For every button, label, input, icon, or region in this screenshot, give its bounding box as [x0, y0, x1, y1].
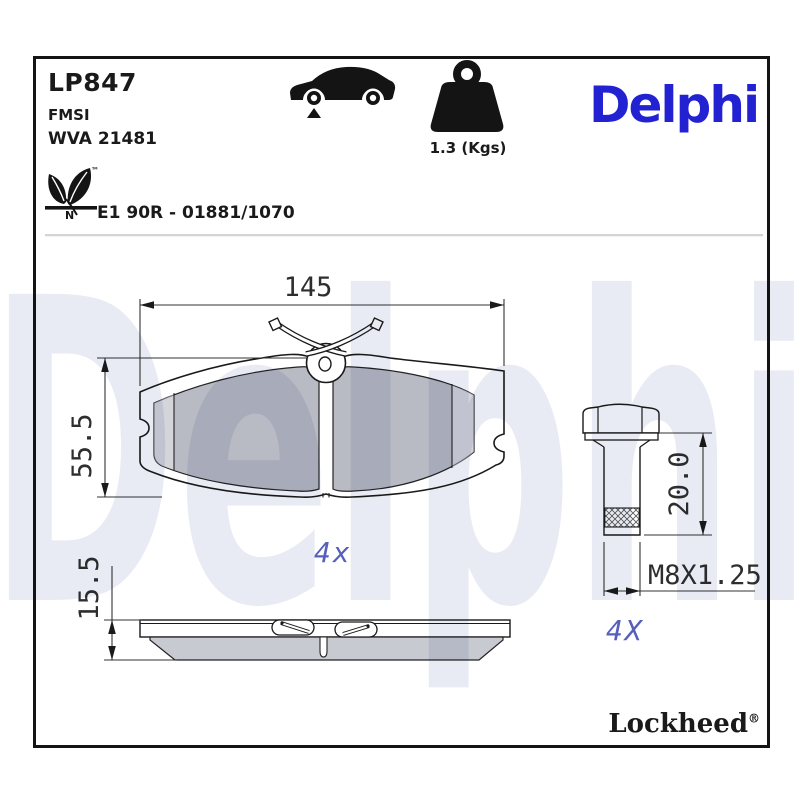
header-divider — [45, 234, 763, 237]
guide-bolt-view — [583, 404, 659, 535]
lockheed-wordmark: Lockheed — [608, 709, 748, 739]
lockheed-logo: Lockheed® — [608, 709, 760, 739]
dim-width-value: 145 — [284, 272, 333, 303]
bolt-neck — [593, 440, 650, 447]
boss-hole — [319, 357, 331, 371]
dim-height-value: 55.5 — [67, 413, 98, 478]
eco-leaf-icon: N ™ — [44, 163, 100, 221]
approval-text: E1 90R - 01881/1070 — [97, 203, 295, 223]
trademark-symbol: ™ — [91, 166, 99, 175]
bolt-knurl-band — [605, 508, 639, 527]
bolt-flange — [585, 433, 658, 440]
dimension-bolt-length-20: 20.0 — [644, 433, 712, 535]
dim-thickness-value: 15.5 — [74, 555, 105, 620]
friction-left-chamfer — [154, 394, 174, 470]
side-backing-plate — [140, 620, 510, 637]
brake-pad-front-view — [140, 318, 504, 498]
thread-spec-label: M8X1.25 — [648, 560, 762, 591]
weight-icon — [424, 60, 510, 140]
bolt-quantity-label: 4X — [606, 614, 644, 647]
fmsi-label: FMSI — [48, 106, 90, 124]
dimension-thread-spec: M8X1.25 — [604, 542, 762, 596]
brake-pad-side-view — [140, 620, 510, 660]
car-side-icon — [288, 58, 400, 120]
weight-value: 1.3 (Kgs) — [420, 139, 516, 157]
front-quantity-label: 4x — [314, 536, 352, 569]
side-wear-slot — [320, 637, 327, 657]
registered-mark: ® — [748, 711, 760, 725]
eco-letter: N — [65, 209, 74, 221]
delphi-logo: Delphi — [589, 80, 758, 130]
spring-clip-wires — [269, 318, 383, 354]
front-axle-marker — [307, 108, 321, 118]
bolt-head — [583, 404, 659, 433]
dim-bolt-length-value: 20.0 — [664, 451, 695, 516]
wva-number: WVA 21481 — [48, 129, 157, 149]
part-number: LP847 — [48, 68, 137, 97]
